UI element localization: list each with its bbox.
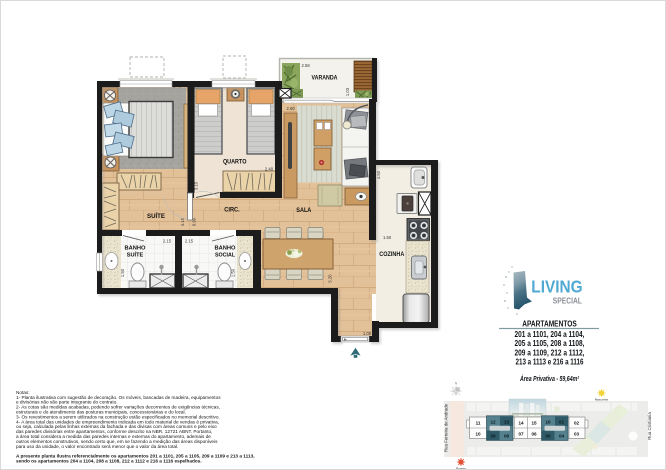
svg-text:SUÍTE: SUÍTE: [147, 211, 165, 220]
svg-text:1.50: 1.50: [231, 268, 236, 277]
svg-text:2.58: 2.58: [302, 63, 311, 68]
svg-text:2.15: 2.15: [185, 239, 194, 244]
svg-text:COZINHA: COZINHA: [379, 252, 405, 258]
svg-text:09: 09: [490, 433, 496, 438]
svg-text:1.00: 1.00: [363, 331, 372, 336]
svg-text:VARANDA: VARANDA: [312, 76, 339, 82]
svg-text:1.50: 1.50: [383, 235, 392, 240]
svg-text:07: 07: [518, 431, 524, 436]
svg-text:N: N: [455, 382, 458, 386]
svg-text:para uso da unidade, o valor e: para uso da unidade, o valor encontrado …: [16, 444, 178, 449]
svg-text:SUÍTE: SUÍTE: [127, 250, 144, 258]
svg-text:BANHO: BANHO: [125, 246, 146, 252]
svg-text:1.03: 1.03: [345, 87, 350, 96]
svg-text:SALA: SALA: [296, 207, 311, 214]
svg-text:13: 13: [504, 419, 510, 424]
svg-text:08: 08: [504, 433, 510, 438]
svg-text:10: 10: [475, 431, 481, 436]
svg-text:1.50: 1.50: [120, 268, 125, 277]
svg-text:Poente: Poente: [456, 467, 466, 470]
svg-text:03: 03: [574, 431, 580, 436]
svg-text:14: 14: [518, 421, 524, 426]
svg-text:Nascente: Nascente: [595, 398, 609, 402]
svg-text:12: 12: [490, 419, 496, 424]
svg-text:SPECIAL: SPECIAL: [553, 295, 582, 305]
svg-text:05: 05: [545, 433, 551, 438]
svg-text:11: 11: [476, 421, 481, 426]
svg-text:LIVING: LIVING: [531, 276, 582, 296]
svg-text:Área Privativa - 59,64m²: Área Privativa - 59,64m²: [519, 374, 579, 383]
svg-text:CIRC.: CIRC.: [224, 207, 240, 214]
svg-text:01: 01: [559, 419, 565, 424]
svg-text:04: 04: [559, 433, 565, 438]
svg-text:02: 02: [574, 421, 580, 426]
svg-text:06: 06: [531, 431, 537, 436]
svg-text:2.40: 2.40: [265, 167, 274, 172]
svg-text:sendo os apartamentos 204 a 11: sendo os apartamentos 204 a 1104, 208 a …: [16, 459, 202, 464]
svg-text:15: 15: [531, 421, 537, 426]
svg-text:SOCIAL: SOCIAL: [215, 252, 235, 258]
svg-text:201 a 1101, 204 a 1104,: 201 a 1101, 204 a 1104,: [515, 330, 585, 339]
svg-text:205 a 1105, 208 a 1108,: 205 a 1105, 208 a 1108,: [515, 339, 585, 348]
svg-text:16: 16: [545, 419, 551, 424]
svg-text:Rua Ferreira de Andrade: Rua Ferreira de Andrade: [444, 403, 449, 452]
svg-text:5.26: 5.26: [328, 274, 333, 283]
svg-text:213 a 1113 e 216 a 1116: 213 a 1113 e 216 a 1116: [516, 358, 584, 367]
svg-text:BANHO: BANHO: [215, 246, 236, 252]
svg-text:Rua Cristiania: Rua Cristiania: [647, 412, 652, 440]
svg-text:QUARTO: QUARTO: [223, 158, 247, 165]
svg-text:APARTAMENTOS: APARTAMENTOS: [522, 320, 577, 329]
svg-text:2.15: 2.15: [163, 239, 172, 244]
svg-text:2.60: 2.60: [287, 106, 296, 111]
svg-text:209 a 1109, 212 a 1112,: 209 a 1109, 212 a 1112,: [515, 348, 585, 357]
